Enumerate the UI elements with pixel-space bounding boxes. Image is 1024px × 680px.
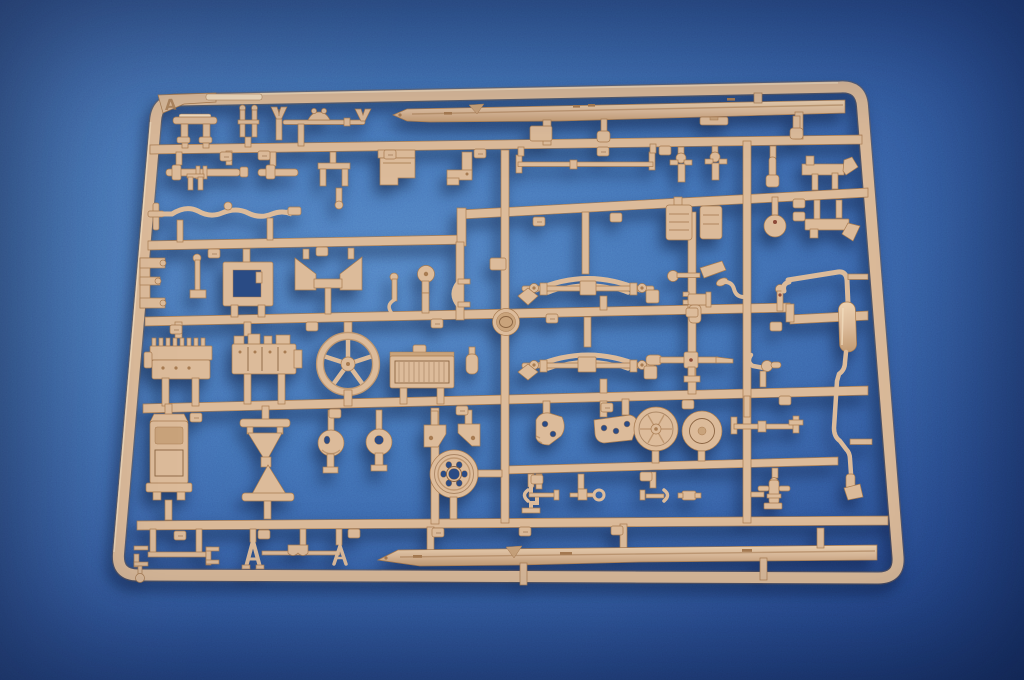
part-hook-rod (389, 273, 398, 312)
part-flat-bracket-a (700, 117, 728, 125)
part-coupler (678, 491, 701, 500)
part-tank-seat (146, 404, 192, 520)
sprue-center-boss (493, 309, 520, 336)
part-leaf-spring-rear (518, 317, 657, 393)
part-small-cylinder (466, 347, 478, 374)
part-channel-bracket-left (140, 258, 166, 308)
part-knob-disc (418, 266, 435, 314)
part-bracket-three-hole (594, 399, 637, 443)
part-pin-cylinder-a (597, 119, 610, 142)
sprue-runner-a: A (114, 83, 898, 585)
part-engine-block-ribbed (144, 322, 212, 406)
part-radiator (390, 345, 454, 404)
part-link-rod-bracket (262, 529, 346, 564)
part-turnbuckle-b (570, 474, 604, 500)
part-step-bracket-upper (802, 156, 858, 190)
part-rod-hook (190, 254, 206, 298)
part-bracket-two-hole (536, 401, 564, 445)
part-axle-shaft-long (166, 151, 248, 190)
part-foot-bracket-a (424, 411, 446, 447)
part-foot-bracket-b (458, 410, 480, 446)
part-leaf-spring-front (518, 212, 659, 310)
part-wheel-spoked (634, 407, 678, 463)
part-wheel-hub (430, 450, 502, 519)
part-engine-block-paneled (232, 322, 302, 404)
part-l-bracket (447, 152, 472, 185)
part-ball-link (668, 261, 727, 282)
photo-scene: A (0, 0, 1024, 680)
part-footboard (173, 114, 217, 148)
part-wavy-axle-rod (148, 202, 301, 242)
part-loop-disc (366, 410, 392, 471)
part-pin-cylinder-right (766, 146, 779, 187)
part-tie-rod-t-ends (731, 396, 803, 434)
part-jack-stand (240, 406, 294, 519)
part-step-block (378, 150, 415, 185)
part-twin-clevis (238, 105, 259, 147)
part-teardrop-hanger (764, 197, 786, 237)
part-hydrant-valve (751, 468, 790, 509)
part-yoke-a (670, 147, 692, 182)
part-tie-rod-saddle (283, 108, 371, 146)
part-staple-bracket (318, 152, 350, 209)
part-canister-b (700, 206, 722, 239)
part-block-under-rail (530, 126, 552, 141)
part-wheel-ring (682, 411, 722, 461)
part-window-frame (223, 249, 273, 317)
part-step-bracket-lower (805, 200, 860, 241)
part-dome-pulley (318, 410, 344, 473)
sprue-corner-label: A (165, 96, 178, 114)
part-elbow-pipe (749, 355, 781, 387)
part-yoke-b (705, 146, 727, 180)
part-small-block-c (490, 258, 506, 270)
part-wedge-mounts (295, 248, 362, 314)
part-s-link (715, 276, 744, 297)
part-steering-wheel (317, 322, 380, 406)
part-torque-rod (646, 352, 733, 382)
sprue-photo: A (0, 0, 1024, 680)
